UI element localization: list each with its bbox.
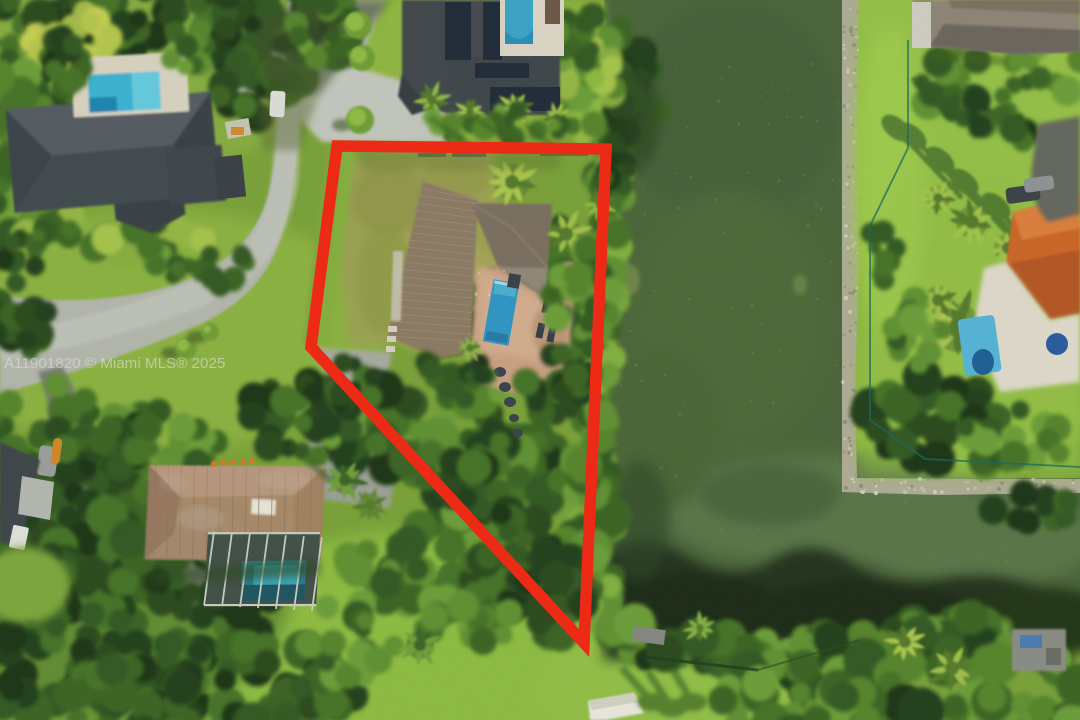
svg-text:A11901820 © Miami MLS® 2025: A11901820 © Miami MLS® 2025 bbox=[4, 355, 225, 372]
